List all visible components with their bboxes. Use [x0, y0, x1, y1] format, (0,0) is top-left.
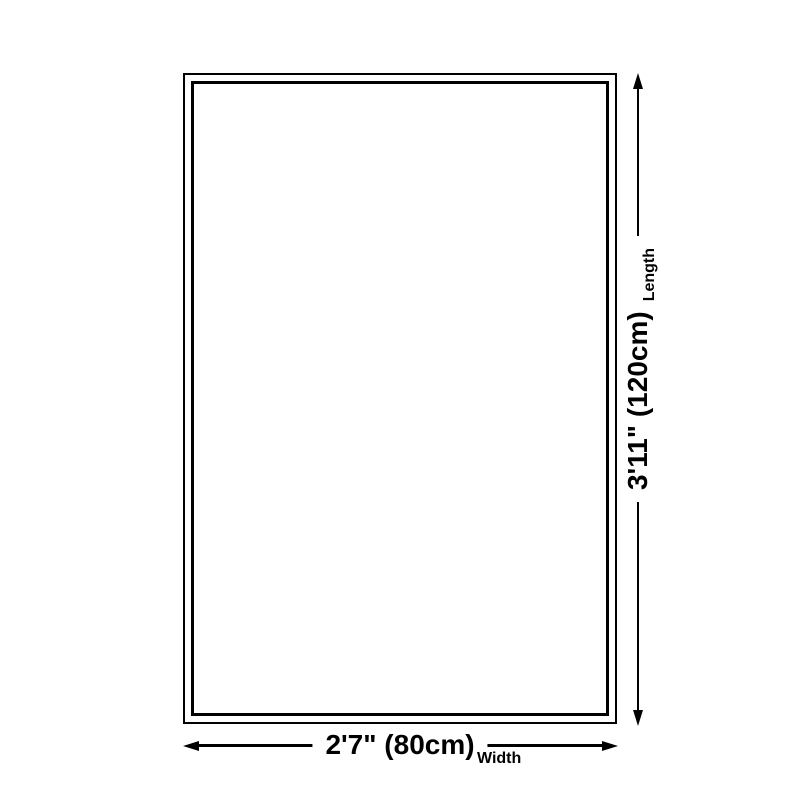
width-arrow-right-icon	[602, 741, 618, 751]
length-arrow-up-icon	[633, 73, 643, 89]
width-arrow-left-icon	[183, 741, 199, 751]
width-label: Width	[477, 750, 521, 768]
width-value: 2'7" (80cm)	[312, 727, 487, 763]
rug-outline	[183, 73, 617, 724]
length-value: 3'11" (120cm)	[622, 311, 654, 490]
size-diagram: 3'11" (120cm) Length 2'7" (80cm) Width	[0, 0, 800, 800]
length-label: Length	[641, 248, 659, 301]
length-dimension-label: 3'11" (120cm) Length	[620, 236, 656, 502]
length-arrow-down-icon	[633, 710, 643, 726]
rug-inner-border	[191, 81, 609, 716]
